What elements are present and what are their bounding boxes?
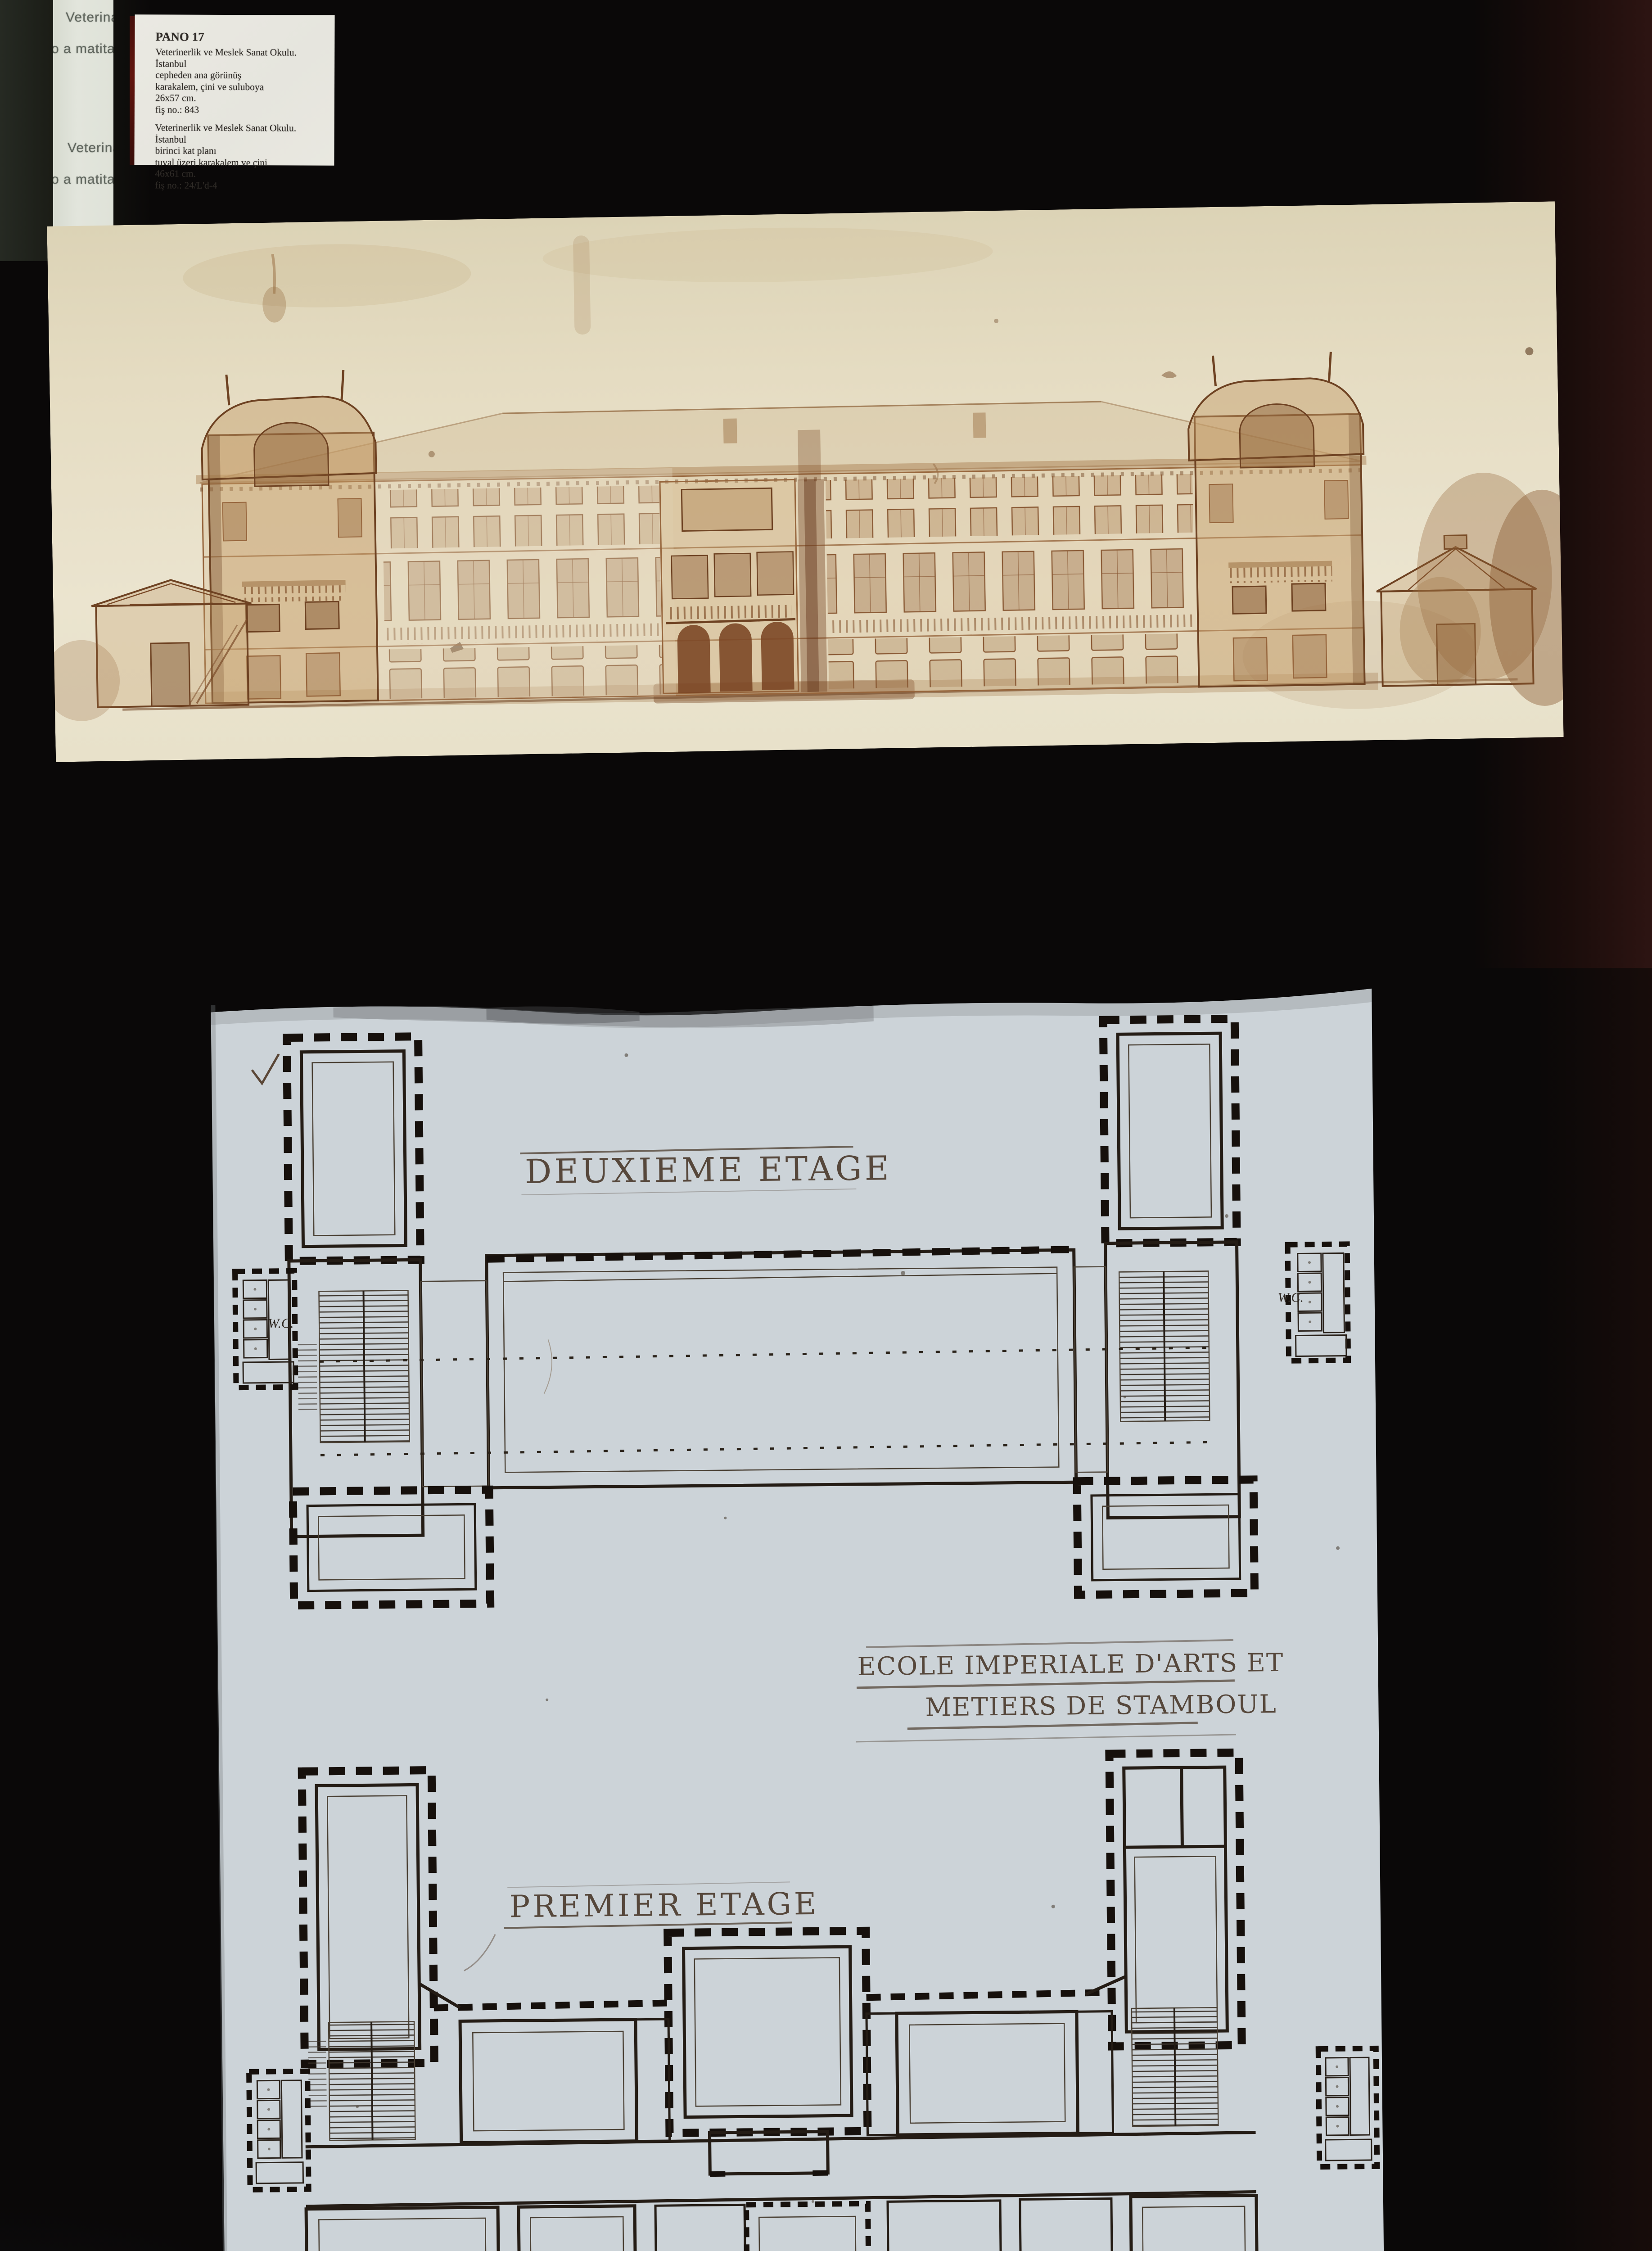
stairs-small [298,1342,318,1414]
faded-wash [375,468,676,701]
chimney [723,419,737,443]
window-row-ground-right [828,633,1196,689]
pano-card-line: fiş no.: 843 [155,104,325,116]
premier-etage-title: PREMIER ETAGE [509,1886,819,1925]
floor-plan-sheet: W.C. W.C. DEUXIEME ETAGE [198,980,1418,2251]
wc-label: W.C. [268,1316,294,1331]
strip-text-fragment: o a matita; [53,172,113,187]
pano-card-line: cepheden ana görünüş [155,69,325,81]
ecole-title-line1: ECOLE IMPERIALE D'ARTS ET [857,1648,1284,1681]
slide-photograph: Veterinaria. o a matita; Veterinaria o a… [0,0,1652,2251]
ecole-title-line2: METIERS DE STAMBOUL [925,1690,1277,1722]
window-row-mid-right [826,543,1194,617]
facade-drawing [47,201,1563,762]
strip-text-fragment: Veterinaria [68,140,113,156]
pano-card-line: fiş no.: 24/L'd-4 [155,180,325,192]
facade-elevation-artwork [47,201,1563,762]
pano-card: PANO 17 Veterinerlik ve Meslek Sanat Oku… [134,14,334,166]
stair-divider [1174,2008,1176,2126]
pano-card-line: Veterinerlik ve Meslek Sanat Okulu. İsta… [155,122,325,145]
pano-card-line: Veterinerlik ve Meslek Sanat Okulu. İsta… [155,46,325,70]
left-label-strip: Veterinaria. o a matita; Veterinaria o a… [53,0,113,236]
deuxieme-etage-title: DEUXIEME ETAGE [525,1149,892,1191]
chimney [973,412,986,438]
stair-divider [371,2022,373,2140]
film-maroon-shade-lower [1535,968,1652,2251]
wing-partition [1124,1846,1225,1847]
wing-partition [1182,1767,1183,1847]
pano-card-line: 46x61 cm. [155,168,325,180]
pano-card-line: birinci kat planı [155,145,325,157]
pano-card-line: karakalem, çini ve suluboya [155,81,325,93]
window-row-top-right [826,474,1193,538]
stairs-small [308,2039,326,2107]
strip-text-fragment: o a matita; [53,41,113,57]
right-pavilion [1187,351,1367,687]
pano-card-line: 26x57 cm. [155,92,325,104]
strip-text-fragment: Veterinaria. [66,10,113,25]
pano-card-line: tuval üzeri karakalem ve çini [155,157,325,169]
floor-plan-drawing: W.C. W.C. DEUXIEME ETAGE [198,980,1418,2251]
pano-card-title: PANO 17 [155,30,325,44]
wc-label: W.C. [1278,1290,1304,1305]
